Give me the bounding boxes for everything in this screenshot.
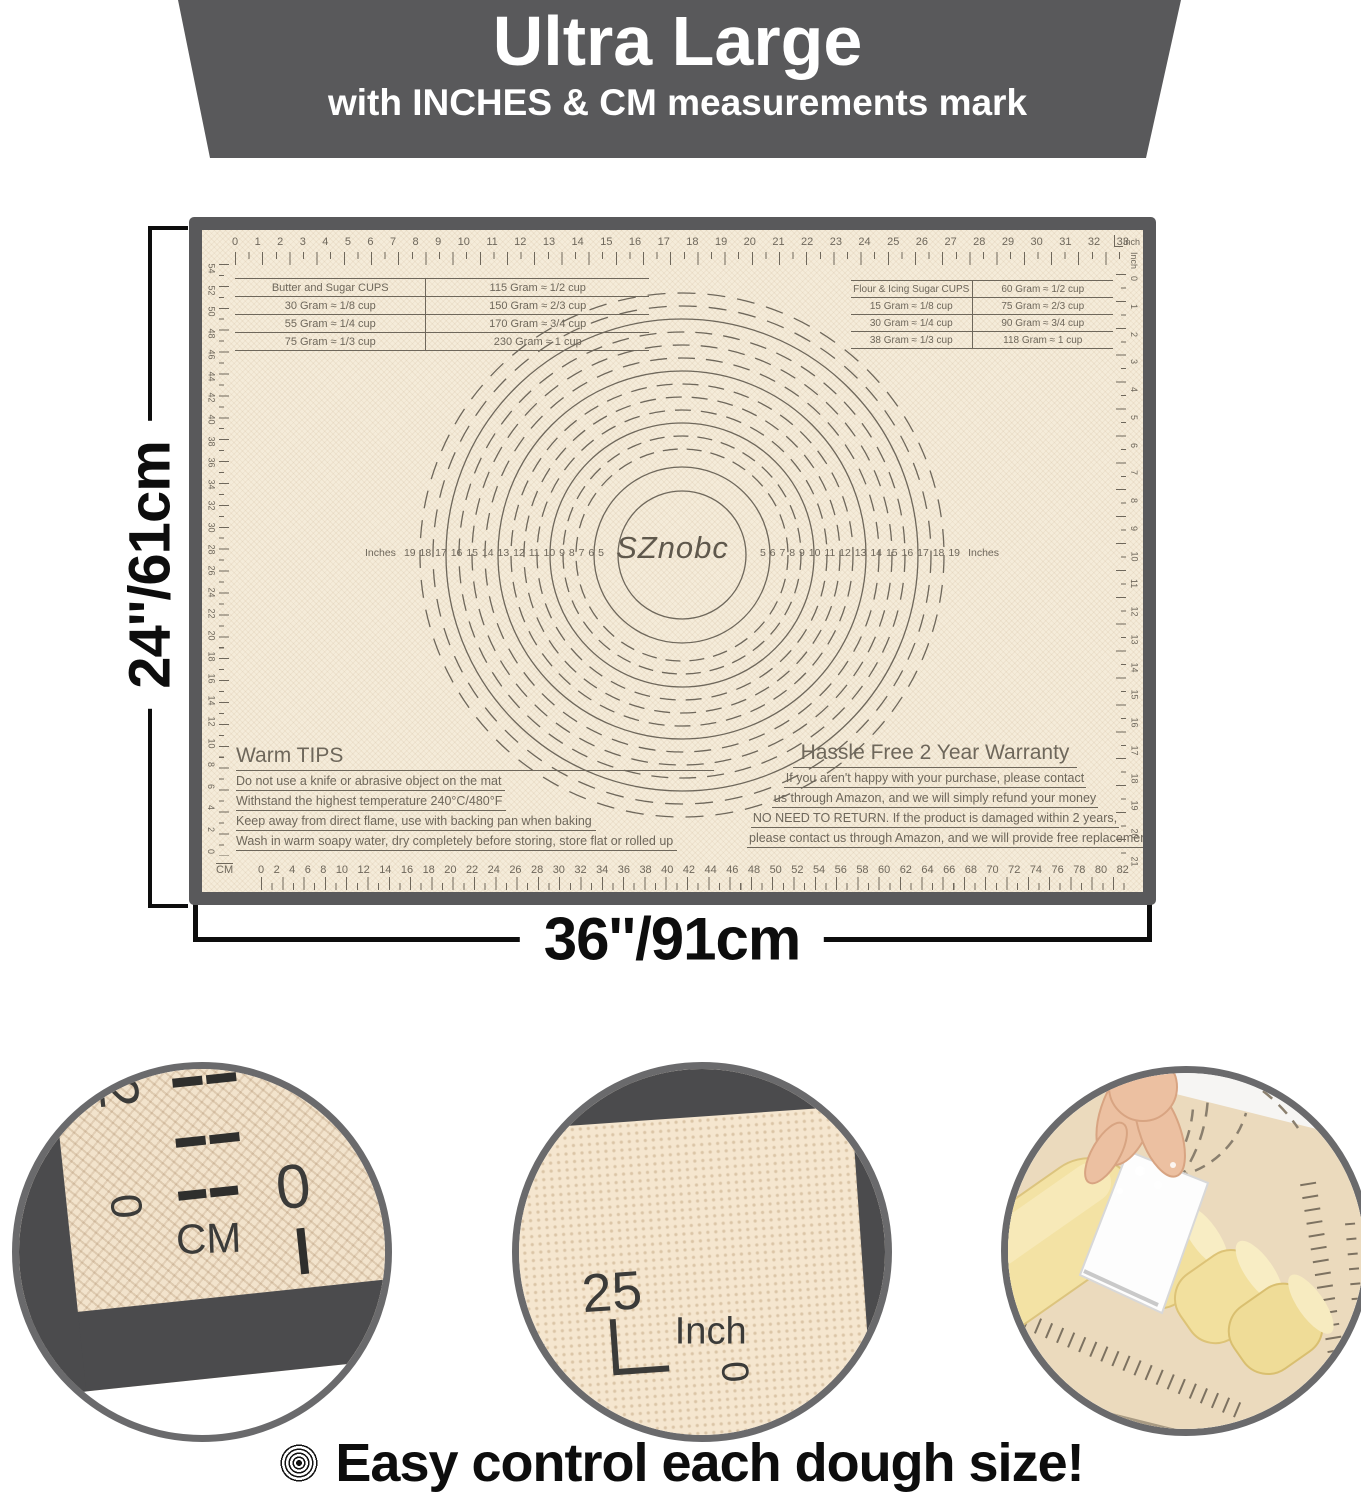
- ruler-number: 76: [1052, 865, 1064, 876]
- ruler-number: 0: [206, 849, 215, 854]
- pastry-mat: 0123456789101112131415161718192021222324…: [189, 217, 1156, 905]
- ruler-number: 60: [878, 865, 890, 876]
- cm-ruler-number-2: 2: [89, 1074, 148, 1111]
- ruler-number: 19: [715, 237, 727, 248]
- ruler-number: 42: [206, 393, 215, 403]
- ruler-number: 15: [1129, 690, 1138, 700]
- ruler-number: 2: [277, 237, 283, 248]
- banner: Ultra Large with INCHES & CM measurement…: [170, 0, 1185, 158]
- ruler-number: 19: [1129, 801, 1138, 811]
- ruler-number: 2: [206, 827, 215, 832]
- conversion-cell: 55 Gram ≈ 1/4 cup: [235, 315, 425, 333]
- ruler-number: 34: [596, 865, 608, 876]
- ruler-number: 40: [206, 415, 215, 425]
- ruler-number: 22: [801, 237, 813, 248]
- target-circles-icon: [277, 1441, 321, 1485]
- ruler-number: 29: [1002, 237, 1014, 248]
- ruler-number: 34: [206, 479, 215, 489]
- ruler-number: 2: [274, 865, 280, 876]
- tick-mark: [535, 1344, 547, 1383]
- ruler-number: 36: [206, 458, 215, 468]
- cm-ruler-number-0: 0: [102, 1192, 148, 1221]
- ruler-number: 50: [770, 865, 782, 876]
- ruler-number: 14: [572, 237, 584, 248]
- ruler-number: 4: [322, 237, 328, 248]
- ruler-number: 46: [206, 350, 215, 360]
- tick-mark: [175, 1136, 206, 1148]
- ruler-number: 54: [813, 865, 825, 876]
- ruler-number: 38: [639, 865, 651, 876]
- caption-text: Easy control each dough size!: [335, 1432, 1083, 1494]
- ruler-number: 6: [367, 237, 373, 248]
- mat-corner-closeup: 2 0 CM 0: [12, 1062, 392, 1400]
- ruler-number: 80: [1095, 865, 1107, 876]
- ruler-number: 50: [206, 307, 215, 317]
- ruler-number: 58: [856, 865, 868, 876]
- ruler-number: 6: [305, 865, 311, 876]
- warranty-lines: If you aren't happy with your purchase, …: [747, 768, 1123, 848]
- ruler-number: 22: [466, 865, 478, 876]
- ruler-number: 6: [206, 784, 215, 789]
- ruler-number: 3: [1129, 359, 1138, 364]
- ruler-number: 44: [705, 865, 717, 876]
- ruler-number: 11: [486, 237, 497, 248]
- top-ruler-major-ticks: [235, 252, 1132, 265]
- ruler-number: 54: [206, 263, 215, 273]
- top-inch-ruler: 0123456789101112131415161718192021222324…: [232, 237, 1129, 248]
- ruler-number: 18: [423, 865, 435, 876]
- ruler-number: 56: [835, 865, 847, 876]
- ruler-number: 38: [206, 436, 215, 446]
- ruler-number: 32: [574, 865, 586, 876]
- ruler-number: 5: [1129, 415, 1138, 420]
- ruler-number: 1: [1129, 304, 1138, 309]
- ruler-number: 23: [830, 237, 842, 248]
- ruler-number: 66: [943, 865, 955, 876]
- pastry-mat-surface: 0123456789101112131415161718192021222324…: [202, 230, 1143, 892]
- ruler-number: 18: [206, 652, 215, 662]
- ruler-number: 4: [1129, 387, 1138, 392]
- ruler-number: 5: [345, 237, 351, 248]
- inch-ruler-number-0: 0: [715, 1360, 754, 1384]
- ruler-number: 44: [206, 371, 215, 381]
- ruler-number: 20: [444, 865, 456, 876]
- product-image-page: Ultra Large with INCHES & CM measurement…: [0, 0, 1361, 1500]
- ruler-number: 78: [1073, 865, 1085, 876]
- ruler-number: 26: [509, 865, 521, 876]
- cm-unit-label: CM: [175, 1217, 242, 1261]
- inch-ruler-number-25: 25: [580, 1263, 644, 1321]
- corner-mark-icon: [610, 1315, 670, 1375]
- right-ruler-unit: Inch: [1129, 252, 1138, 269]
- ruler-number: 40: [661, 865, 673, 876]
- warranty-title: Hassle Free 2 Year Warranty: [793, 741, 1078, 768]
- bottom-cm-ruler: 0246810121416182022242628303234363840424…: [258, 865, 1129, 876]
- conversion-cell: 30 Gram ≈ 1/8 cup: [235, 297, 425, 315]
- ruler-number: 21: [1129, 856, 1138, 866]
- bottom-ruler-unit: CM: [216, 863, 233, 876]
- text-line: Wash in warm soapy water, dry completely…: [236, 831, 677, 851]
- ruler-number: 68: [965, 865, 977, 876]
- ruler-number: 9: [435, 237, 441, 248]
- ruler-number: 70: [986, 865, 998, 876]
- tick-mark: [296, 1228, 309, 1275]
- cm-corner-detail-circle: 2 0 CM 0: [12, 1062, 392, 1442]
- ruler-number: 13: [1129, 634, 1138, 644]
- ruler-number: 0: [232, 237, 238, 248]
- conversion-cell: 75 Gram ≈ 1/3 cup: [235, 333, 425, 351]
- banner-title: Ultra Large: [170, 6, 1185, 76]
- caption-row: Easy control each dough size!: [0, 1432, 1361, 1494]
- text-line: please contact us through Amazon, and we…: [747, 828, 1143, 848]
- bottom-ruler-zero: 0: [273, 1155, 314, 1220]
- conversion-cell: 118 Gram ≈ 1 cup: [972, 332, 1113, 349]
- ruler-number: 2: [1129, 331, 1138, 336]
- ruler-number: 52: [791, 865, 803, 876]
- dough-cutting-detail-circle: [1001, 1066, 1361, 1436]
- ruler-number: 31: [1059, 237, 1071, 248]
- conversion-cell: 75 Gram ≈ 2/3 cup: [972, 298, 1113, 315]
- ruler-number: 3: [300, 237, 306, 248]
- ruler-number: 1: [255, 237, 261, 248]
- right-inch-ruler: 0123456789101112131415161718192021: [1127, 274, 1141, 866]
- tick-mark: [209, 1132, 240, 1144]
- ruler-number: 28: [531, 865, 543, 876]
- tick-mark: [178, 1189, 207, 1201]
- ruler-number: 8: [206, 762, 215, 767]
- dough-cutting-photo: [1008, 1073, 1361, 1436]
- ruler-number: 24: [206, 587, 215, 597]
- ruler-number: 48: [206, 328, 215, 338]
- warm-tips-section: Warm TIPS Do not use a knife or abrasive…: [236, 744, 714, 851]
- ruler-number: 0: [258, 865, 264, 876]
- ruler-number: 12: [206, 717, 215, 727]
- height-dimension-label: 24''/61cm: [117, 421, 184, 709]
- ruler-number: 26: [916, 237, 928, 248]
- ruler-number: 10: [206, 738, 215, 748]
- tick-mark: [206, 1072, 237, 1084]
- ruler-number: 18: [1129, 773, 1138, 783]
- ruler-number: 10: [458, 237, 470, 248]
- ruler-number: 48: [748, 865, 760, 876]
- inch-corner-detail-circle: 25 Inch 0: [512, 1062, 892, 1442]
- height-dimension-cap-top: [148, 226, 188, 230]
- ruler-number: 17: [658, 237, 670, 248]
- ruler-number: 12: [1129, 606, 1138, 616]
- ruler-number: 16: [1129, 717, 1138, 727]
- warm-tips-lines: Do not use a knife or abrasive object on…: [236, 771, 714, 851]
- text-line: NO NEED TO RETURN. If the product is dam…: [751, 808, 1119, 828]
- ruler-number: 32: [206, 501, 215, 511]
- mat-corner-closeup: 25 Inch 0: [512, 1062, 892, 1442]
- warm-tips-title: Warm TIPS: [236, 744, 714, 771]
- banner-subtitle: with INCHES & CM measurements mark: [170, 82, 1185, 124]
- ruler-number: 0: [1129, 276, 1138, 281]
- ruler-number: 16: [206, 673, 215, 683]
- ruler-number: 82: [1117, 865, 1129, 876]
- top-ruler-unit: Inch: [1114, 235, 1140, 247]
- ruler-number: 17: [1129, 745, 1138, 755]
- ruler-number: 64: [921, 865, 933, 876]
- brand-logo: SZnobc: [202, 530, 1143, 566]
- text-line: Withstand the highest temperature 240°C/…: [236, 791, 506, 811]
- ruler-number: 20: [744, 237, 756, 248]
- ruler-number: 74: [1030, 865, 1042, 876]
- warranty-section: Hassle Free 2 Year Warranty If you aren'…: [747, 741, 1123, 848]
- ruler-number: 20: [206, 630, 215, 640]
- ruler-number: 28: [973, 237, 985, 248]
- ruler-number: 15: [600, 237, 612, 248]
- ruler-number: 12: [358, 865, 370, 876]
- ruler-number: 8: [413, 237, 419, 248]
- ruler-number: 21: [772, 237, 784, 248]
- ruler-number: 24: [488, 865, 500, 876]
- height-dimension-cap-bottom: [148, 904, 188, 908]
- width-dimension-label: 36''/91cm: [520, 905, 824, 974]
- ruler-number: 13: [543, 237, 555, 248]
- ruler-number: 16: [401, 865, 413, 876]
- ruler-number: 12: [514, 237, 526, 248]
- inch-unit-label: Inch: [675, 1312, 747, 1350]
- ruler-number: 14: [1129, 662, 1138, 672]
- ruler-number: 27: [944, 237, 956, 248]
- ruler-number: 7: [1129, 470, 1138, 475]
- tick-mark: [172, 1076, 203, 1088]
- ruler-number: 14: [206, 695, 215, 705]
- bottom-ruler-major-ticks: [261, 877, 1132, 890]
- ruler-number: 32: [1088, 237, 1100, 248]
- ruler-number: 8: [320, 865, 326, 876]
- ruler-number: 24: [858, 237, 870, 248]
- ruler-number: 22: [206, 609, 215, 619]
- ruler-number: 6: [1129, 442, 1138, 447]
- conversion-cell: Butter and Sugar CUPS: [235, 279, 425, 297]
- ruler-number: 7: [390, 237, 396, 248]
- ruler-number: 10: [336, 865, 348, 876]
- ruler-number: 62: [900, 865, 912, 876]
- ruler-number: 26: [206, 566, 215, 576]
- ruler-number: 42: [683, 865, 695, 876]
- ruler-number: 25: [887, 237, 899, 248]
- ruler-number: 30: [1031, 237, 1043, 248]
- ruler-number: 14: [379, 865, 391, 876]
- ruler-number: 11: [1130, 579, 1139, 588]
- text-line: If you aren't happy with your purchase, …: [784, 768, 1086, 788]
- tick-mark: [210, 1186, 239, 1198]
- conversion-cell: 90 Gram ≈ 3/4 cup: [972, 315, 1113, 332]
- ruler-number: 8: [1129, 498, 1138, 503]
- conversion-cell: 60 Gram ≈ 1/2 cup: [972, 281, 1113, 298]
- text-line: us through Amazon, and we will simply re…: [772, 788, 1098, 808]
- ruler-number: 72: [1008, 865, 1020, 876]
- corner-mark-icon: [1114, 235, 1123, 247]
- ruler-number: 4: [289, 865, 295, 876]
- text-line: Keep away from direct flame, use with ba…: [236, 811, 596, 831]
- ruler-number: 30: [553, 865, 565, 876]
- text-line: Do not use a knife or abrasive object on…: [236, 771, 505, 791]
- ruler-number: 18: [686, 237, 698, 248]
- ruler-number: 52: [206, 285, 215, 295]
- ruler-number: 36: [618, 865, 630, 876]
- ruler-number: 46: [726, 865, 738, 876]
- ruler-number: 4: [206, 805, 215, 810]
- ruler-number: 16: [629, 237, 641, 248]
